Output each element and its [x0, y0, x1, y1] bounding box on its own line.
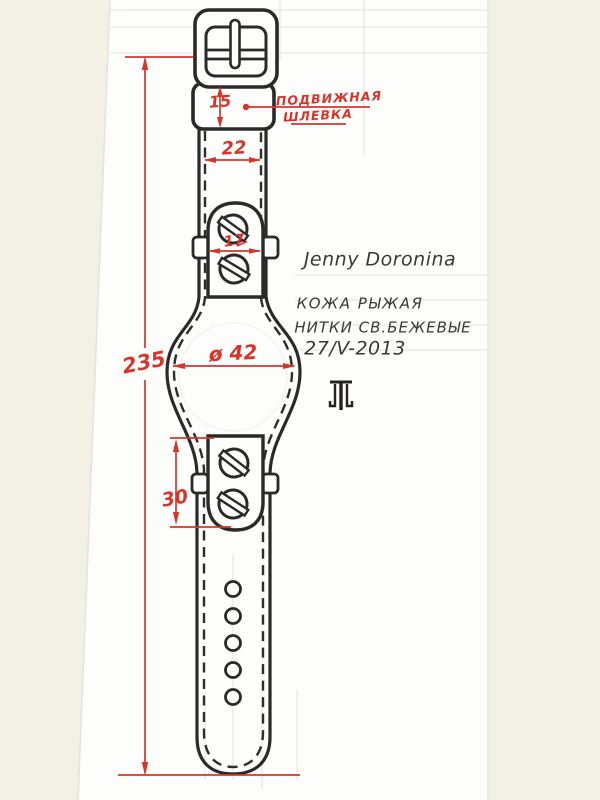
dim-lower-mount-height-label: 30 [160, 487, 189, 510]
strap-hole [226, 582, 241, 597]
strap-hole [226, 663, 241, 678]
dim-lug-width-label: 17 [223, 232, 246, 250]
strap-hole [226, 690, 241, 705]
author-note: Jenny Doronina [304, 251, 456, 270]
thread-note: НИТКИ СВ.БЕЖЕВЫЕ [294, 321, 471, 336]
date-note: 27/V-2013 [304, 340, 406, 359]
leader-dot [243, 104, 249, 110]
strap-hole [226, 636, 241, 651]
buckle [195, 10, 277, 87]
buckle-prong [231, 20, 240, 68]
leather-note: КОЖА РЫЖАЯ [297, 297, 424, 312]
keeper-loop [193, 83, 274, 129]
dim-strap-width-label: 22 [221, 139, 247, 158]
dim-keeper-height-label: 15 [208, 93, 231, 111]
dim-case-diameter-label: ø 42 [208, 342, 258, 365]
scanned-sketch-page: 15 22 17 235 ø 42 30 ПОДВИЖНАЯ ШЛЕВКА Je… [0, 0, 600, 800]
strap-hole [226, 609, 241, 624]
lower-left-tab [192, 474, 208, 493]
